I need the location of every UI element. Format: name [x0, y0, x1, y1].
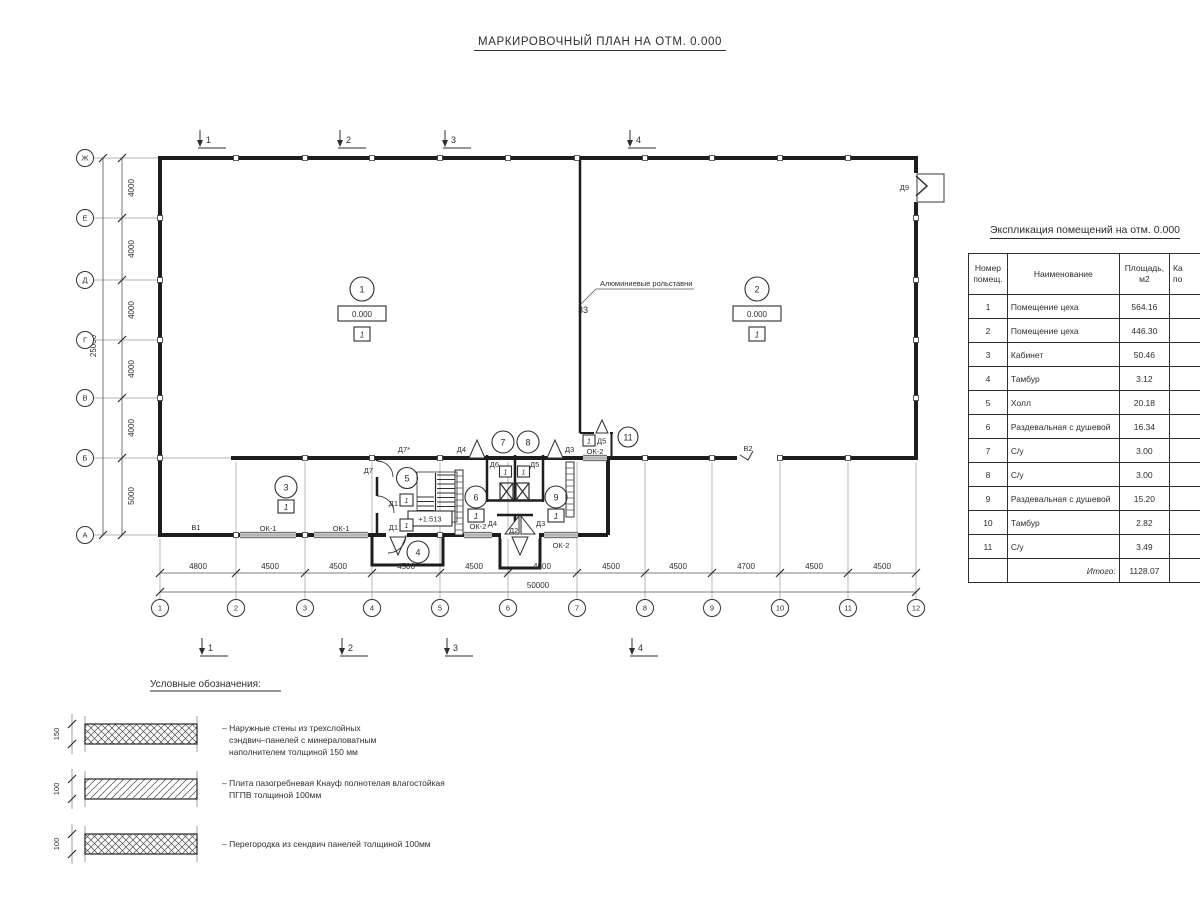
room2-level: 0.000 — [747, 310, 768, 319]
cell-area: 564.16 — [1119, 295, 1169, 319]
rollshutter-label: Алюминиевые рольставни — [600, 279, 692, 288]
dim-value: 4700 — [737, 562, 755, 571]
table-row: 9Раздевальная с душевой15.20 — [969, 487, 1200, 511]
window-ok2-room6-label: ОК-2 — [470, 522, 487, 531]
room2-marker: 2 0.000 1 — [733, 277, 781, 341]
cell-category — [1170, 439, 1200, 463]
door-d6-label: Д6 — [490, 460, 499, 469]
cell-num: 2 — [969, 319, 1008, 343]
room11-number: 11 — [623, 433, 632, 443]
dim-value: 4500 — [261, 562, 279, 571]
table-total-row: Итого:1128.07 — [969, 559, 1200, 583]
axis-label: 3 — [303, 604, 307, 613]
legend-dim: 150 — [52, 728, 61, 741]
grid-horizontal-lines — [94, 158, 231, 535]
table-row: 10Тамбур2.82 — [969, 511, 1200, 535]
room3-number: 3 — [283, 483, 288, 493]
room8-number: 8 — [525, 438, 530, 448]
axis-label: 12 — [912, 604, 920, 613]
cell-name: Раздевальная с душевой — [1007, 487, 1119, 511]
cell-empty — [969, 559, 1008, 583]
cell-area: 2.82 — [1119, 511, 1169, 535]
room-schedule-table: Номерпомещ. Наименование Площадь,м2 Капо… — [968, 253, 1200, 583]
room-schedule: Экспликация помещений на отм. 0.000 Номе… — [968, 224, 1200, 583]
section-mark-label: 4 — [636, 135, 641, 145]
axis-label: 2 — [234, 604, 238, 613]
room6-number: 6 — [473, 493, 478, 503]
axis-label: Ж — [82, 154, 89, 163]
cell-category — [1170, 511, 1200, 535]
legend: Условные обозначения: 150 – Наружные сте… — [52, 678, 445, 864]
dim-value: 4500 — [329, 562, 347, 571]
dim-value: 4000 — [127, 419, 136, 437]
column-bubble-labels: 1 2 3 4 5 6 7 8 9 10 11 12 — [158, 604, 920, 613]
cell-area: 446.30 — [1119, 319, 1169, 343]
section-marks-bottom: 1 2 3 4 — [199, 638, 658, 656]
door-d3-top-label: Д3 — [565, 445, 574, 454]
dim-value: 4500 — [465, 562, 483, 571]
cell-category — [1170, 343, 1200, 367]
room2-category: 1 — [755, 331, 759, 340]
axis-label: 6 — [506, 604, 510, 613]
gate-v1-label: В1 — [191, 523, 200, 532]
cell-category — [1170, 367, 1200, 391]
window-ok2-room11-label: ОК-2 — [587, 447, 604, 456]
dim-value: 4500 — [533, 562, 551, 571]
axis-label: Г — [83, 336, 87, 345]
cell-num: 9 — [969, 487, 1008, 511]
exterior-walls — [158, 156, 918, 568]
table-header-row: Номерпомещ. Наименование Площадь,м2 Капо — [969, 254, 1200, 295]
cell-num: 5 — [969, 391, 1008, 415]
door-d7-arc — [377, 461, 393, 477]
axis-label: 11 — [844, 604, 852, 613]
section-mark-label: 1 — [206, 135, 211, 145]
window-ok2-room9-label: ОК-2 — [553, 541, 570, 550]
door-d3-top — [547, 440, 563, 458]
cell-num: 3 — [969, 343, 1008, 367]
section-mark-label: 4 — [638, 643, 643, 653]
door-d2-leaf-right — [521, 516, 535, 534]
window-ok1-b-label: ОК-1 — [333, 524, 350, 533]
section-mark-label: 2 — [348, 643, 353, 653]
room8-category: 1 — [522, 470, 526, 477]
cell-category — [1170, 559, 1200, 583]
cell-category — [1170, 319, 1200, 343]
door-d9: Д9 — [900, 174, 944, 202]
stair-level-text: +1.513 — [418, 515, 441, 524]
table-row: 7С/у3.00 — [969, 439, 1200, 463]
door-d3-low-label: Д3 — [536, 519, 545, 528]
cell-category — [1170, 535, 1200, 559]
room9-number: 9 — [553, 493, 558, 503]
room4-number: 4 — [415, 548, 420, 558]
door-d1-lower-category: 1 — [405, 523, 409, 530]
dim-value: 4500 — [805, 562, 823, 571]
col-header-name: Наименование — [1007, 254, 1119, 295]
cell-num: 4 — [969, 367, 1008, 391]
stair-level-mark: +1.513 — [408, 511, 452, 526]
dim-value: 4500 — [397, 562, 415, 571]
section-mark-label: 3 — [453, 643, 458, 653]
section-marks-top: 1 2 3 4 — [197, 130, 656, 148]
axis-label: 8 — [643, 604, 647, 613]
cell-name: Помещение цеха — [1007, 319, 1119, 343]
cell-num: 7 — [969, 439, 1008, 463]
window-ok2-room6 — [464, 532, 492, 538]
legend-item-pgp-wall: 100 – Плита пазогребневая Кнауф полнотел… — [52, 769, 445, 809]
legend-text: сэндвич–панелей с минераловатным — [229, 735, 377, 745]
table-row: 6Раздевальная с душевой16.34 — [969, 415, 1200, 439]
cell-area: 15.20 — [1119, 487, 1169, 511]
cell-name: С/у — [1007, 439, 1119, 463]
legend-text: – Наружные стены из трехслойных — [222, 723, 361, 733]
table-row: 11С/у3.49 — [969, 535, 1200, 559]
door-d7-label: Д7 — [364, 466, 373, 475]
cell-area: 3.12 — [1119, 367, 1169, 391]
col-header-area: Площадь,м2 — [1119, 254, 1169, 295]
axis-label: 10 — [776, 604, 784, 613]
cell-area: 3.49 — [1119, 535, 1169, 559]
door-d9-label: Д9 — [900, 183, 909, 192]
door-d5-room11-label: Д5 — [597, 437, 606, 446]
axis-label: А — [82, 531, 87, 540]
room9-category: 1 — [554, 512, 558, 521]
cell-name: Тамбур — [1007, 367, 1119, 391]
cell-name: Раздевальная с душевой — [1007, 415, 1119, 439]
dim-value: 4000 — [127, 240, 136, 258]
room1-category: 1 — [360, 331, 364, 340]
dim-value: 4000 — [127, 301, 136, 319]
table-row: 2Помещение цеха446.30 — [969, 319, 1200, 343]
total-label: Итого: — [1007, 559, 1119, 583]
axis-label: Е — [82, 214, 87, 223]
table-row: 8С/у3.00 — [969, 463, 1200, 487]
column-bubbles — [152, 600, 925, 617]
cell-category — [1170, 391, 1200, 415]
door-d5-cell-label: Д5 — [530, 460, 539, 469]
legend-dim: 100 — [52, 838, 61, 851]
left-dimensions: 4000 4000 4000 4000 4000 5000 25000 — [89, 179, 136, 505]
rollshutter-mark: 33 — [578, 305, 588, 315]
door-d4-low-label: Д4 — [488, 519, 497, 528]
cell-area: 3.00 — [1119, 439, 1169, 463]
axis-label: 1 — [158, 604, 162, 613]
cell-area: 16.34 — [1119, 415, 1169, 439]
room6-category: 1 — [474, 512, 478, 521]
section-mark-label: 3 — [451, 135, 456, 145]
legend-heading: Условные обозначения: — [150, 678, 261, 690]
section-mark-label: 2 — [346, 135, 351, 145]
cell-category — [1170, 415, 1200, 439]
cell-num: 10 — [969, 511, 1008, 535]
legend-text: – Плита пазогребневая Кнауф полнотелая в… — [222, 778, 445, 788]
cell-name: Холл — [1007, 391, 1119, 415]
door-d1-upper-label: Д1 — [389, 499, 398, 508]
room1-level: 0.000 — [352, 310, 373, 319]
cell-category — [1170, 295, 1200, 319]
bottom-dimensions: 4800 4500 4500 4500 4500 4500 4500 4500 … — [189, 562, 891, 590]
cell-num: 6 — [969, 415, 1008, 439]
door-d2-label: Д2 — [509, 526, 518, 535]
room1-number: 1 — [359, 285, 364, 295]
table-row: 3Кабинет50.46 — [969, 343, 1200, 367]
door-tambour10-leaf — [512, 537, 528, 555]
legend-item-sandwich-partition: 100 – Перегородка из сендвич панелей тол… — [52, 824, 431, 864]
dim-value: 4000 — [127, 179, 136, 197]
cell-num: 1 — [969, 295, 1008, 319]
room1-marker: 1 0.000 1 — [338, 277, 386, 341]
axis-label: В — [82, 394, 87, 403]
cell-name: Помещение цеха — [1007, 295, 1119, 319]
table-row: 1Помещение цеха564.16 — [969, 295, 1200, 319]
section-mark-label: 1 — [208, 643, 213, 653]
drawing-sheet: МАРКИРОВОЧНЫЙ ПЛАН НА ОТМ. 0.000 — [0, 0, 1200, 900]
dim-value: 4500 — [669, 562, 687, 571]
room11-category: 1 — [587, 439, 591, 446]
total-area: 1128.07 — [1119, 559, 1169, 583]
col-header-number: Номерпомещ. — [969, 254, 1008, 295]
cell-num: 8 — [969, 463, 1008, 487]
door-d4-top-label: Д4 — [457, 445, 466, 454]
axis-label: Д — [82, 276, 87, 285]
cell-category — [1170, 463, 1200, 487]
row-bubbles — [77, 150, 94, 544]
legend-text: наполнителем толщиной 150 мм — [229, 747, 358, 757]
door-d4-top — [469, 440, 485, 458]
axis-label: 4 — [370, 604, 374, 613]
axis-label: 5 — [438, 604, 442, 613]
axis-label: 7 — [575, 604, 579, 613]
axis-label: Б — [83, 454, 88, 463]
window-ok1-a-label: ОК-1 — [260, 524, 277, 533]
door-d7s-label: Д7* — [398, 445, 410, 454]
room7-number: 7 — [500, 438, 505, 448]
room5-number: 5 — [404, 474, 409, 484]
table-row: 4Тамбур3.12 — [969, 367, 1200, 391]
table-row: 5Холл20.18 — [969, 391, 1200, 415]
room7-category: 1 — [504, 470, 508, 477]
cell-num: 11 — [969, 535, 1008, 559]
window-ok2-room9 — [544, 532, 578, 538]
dim-value: 4500 — [602, 562, 620, 571]
door-d1-lower-label: Д1 — [389, 523, 398, 532]
cell-area: 50.46 — [1119, 343, 1169, 367]
column-markers — [158, 156, 919, 538]
rollshutter-note: Алюминиевые рольставни 33 — [578, 279, 694, 315]
dim-value: 4000 — [127, 360, 136, 378]
room3-category: 1 — [284, 503, 288, 512]
legend-text: – Перегородка из сендвич панелей толщино… — [222, 839, 431, 849]
dim-value: 4500 — [873, 562, 891, 571]
cell-area: 20.18 — [1119, 391, 1169, 415]
cell-name: Кабинет — [1007, 343, 1119, 367]
room2-number: 2 — [754, 285, 759, 295]
dim-value: 5000 — [127, 487, 136, 505]
dim-value: 4800 — [189, 562, 207, 571]
door-d5-room11 — [596, 420, 608, 433]
gate-v2-label: В2 — [743, 444, 752, 453]
door-d1-upper-category: 1 — [405, 498, 409, 505]
legend-dim: 100 — [52, 783, 61, 796]
legend-text: ПГПВ толщиной 100мм — [229, 790, 321, 800]
col-header-category: Капо — [1170, 254, 1200, 295]
axis-label: 9 — [710, 604, 714, 613]
dim-total-value: 50000 — [527, 581, 550, 590]
legend-item-exterior-wall: 150 – Наружные стены из трехслойных сэнд… — [52, 714, 377, 757]
cell-name: Тамбур — [1007, 511, 1119, 535]
cell-name: С/у — [1007, 463, 1119, 487]
room-schedule-title: Экспликация помещений на отм. 0.000 — [968, 224, 1200, 236]
cell-area: 3.00 — [1119, 463, 1169, 487]
cell-category — [1170, 487, 1200, 511]
cell-name: С/у — [1007, 535, 1119, 559]
